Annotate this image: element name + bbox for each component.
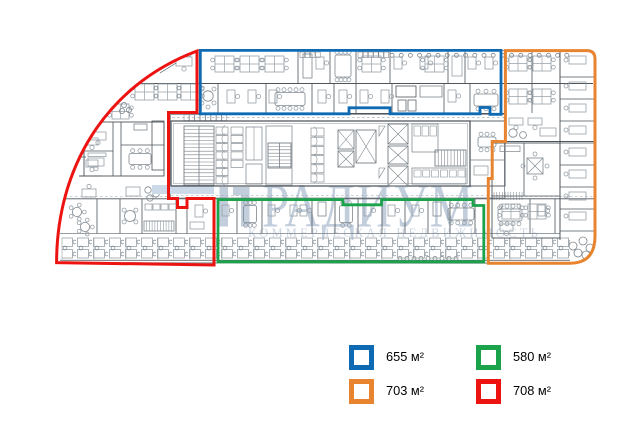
svg-text:655 м²: 655 м²	[386, 349, 425, 364]
svg-text:708 м²: 708 м²	[513, 383, 552, 398]
svg-text:703 м²: 703 м²	[386, 383, 425, 398]
svg-text:580 м²: 580 м²	[513, 349, 552, 364]
